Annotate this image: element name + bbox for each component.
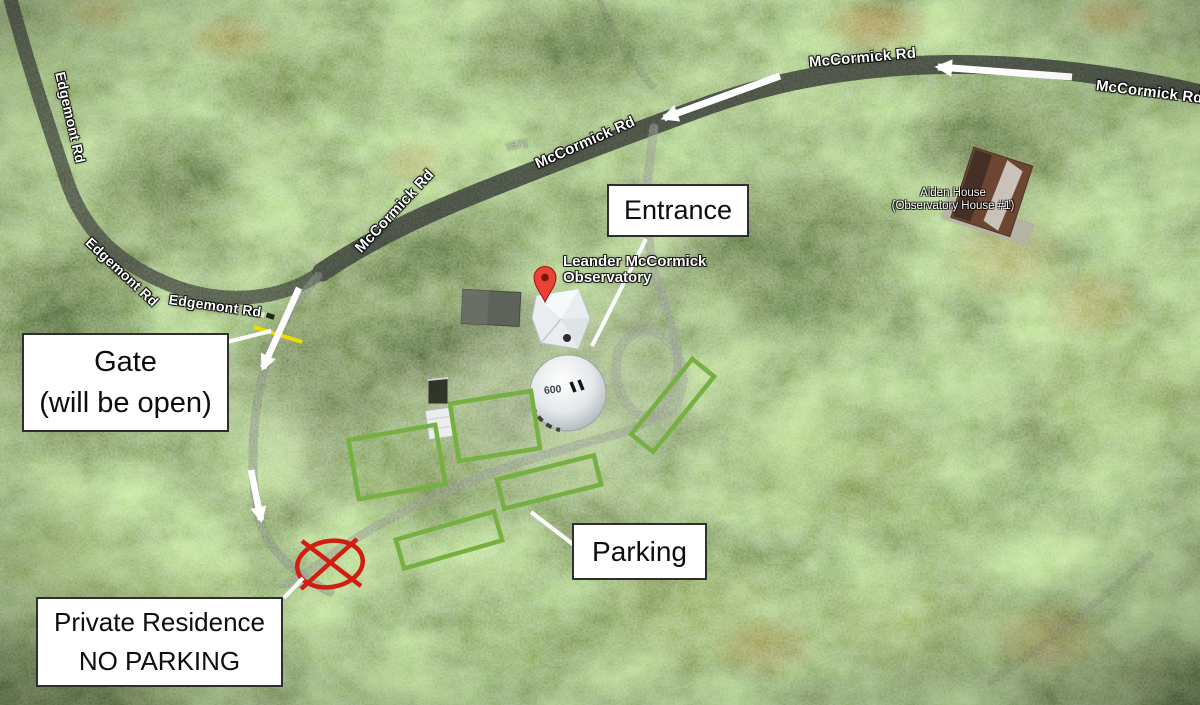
- alden-house-label: Alden House (Observatory House #1): [892, 187, 1015, 212]
- alden-house-line2: (Observatory House #1): [892, 200, 1015, 213]
- parking-callout-text: Parking: [592, 536, 687, 568]
- gate-callout: Gate (will be open): [22, 333, 229, 432]
- gate-callout-line1: Gate: [94, 342, 157, 382]
- entrance-callout-text: Entrance: [624, 195, 732, 226]
- gate-callout-line2: (will be open): [39, 383, 211, 423]
- dome-elevation-label: 600: [543, 383, 562, 397]
- observatory-poi-line2: Observatory: [563, 270, 706, 286]
- private-residence-line2: NO PARKING: [79, 642, 240, 681]
- alden-house-line1: Alden House: [892, 187, 1015, 200]
- private-residence-line1: Private Residence: [54, 603, 265, 642]
- parking-callout: Parking: [572, 523, 707, 580]
- annotated-satellite-map: McCormick Rd McCormick Rd McCormick Rd M…: [0, 0, 1200, 705]
- observatory-poi-line1: Leander McCormick: [563, 254, 706, 270]
- observatory-poi-label: Leander McCormick Observatory: [563, 254, 706, 286]
- entrance-callout: Entrance: [607, 184, 749, 237]
- private-residence-callout: Private Residence NO PARKING: [36, 597, 283, 687]
